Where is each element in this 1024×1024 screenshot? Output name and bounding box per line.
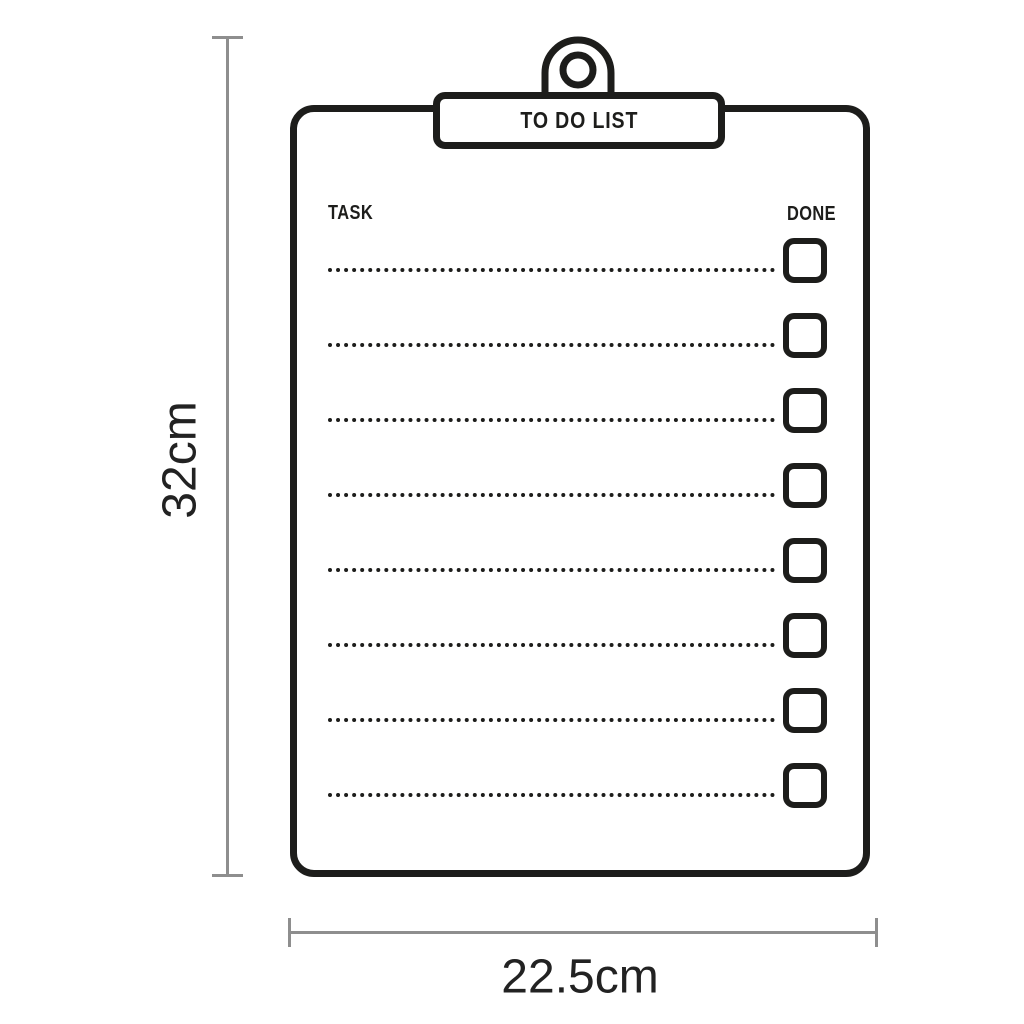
- product-dimension-diagram: 32cm 22.5cm TO DO LIST TASK DONE: [0, 0, 1024, 1024]
- done-checkbox-icon: [783, 688, 827, 733]
- task-dotted-line: [328, 493, 775, 497]
- width-dimension-line: [288, 931, 878, 934]
- height-dimension-line: [226, 36, 229, 877]
- done-checkbox-icon: [783, 313, 827, 358]
- task-dotted-line: [328, 418, 775, 422]
- task-dotted-line: [328, 568, 775, 572]
- dimension-cap: [212, 874, 243, 877]
- task-row: [328, 613, 827, 688]
- done-checkbox-icon: [783, 388, 827, 433]
- done-checkbox-icon: [783, 238, 827, 283]
- done-checkbox-icon: [783, 613, 827, 658]
- task-row: [328, 388, 827, 463]
- height-dimension-label: 32cm: [153, 401, 208, 518]
- task-row: [328, 688, 827, 763]
- task-row: [328, 538, 827, 613]
- task-rows: [328, 238, 827, 838]
- task-dotted-line: [328, 643, 775, 647]
- done-checkbox-icon: [783, 763, 827, 808]
- dimension-cap: [212, 36, 243, 39]
- done-checkbox-icon: [783, 463, 827, 508]
- task-dotted-line: [328, 718, 775, 722]
- clipboard-title: TO DO LIST: [520, 107, 638, 134]
- dimension-cap: [875, 918, 878, 947]
- task-column-header: TASK: [328, 202, 373, 225]
- clip-hole-icon: [563, 55, 593, 85]
- clip-tab-arch: [545, 40, 611, 99]
- task-row: [328, 463, 827, 538]
- task-dotted-line: [328, 268, 775, 272]
- width-dimension-label: 22.5cm: [501, 950, 658, 1005]
- task-row: [328, 238, 827, 313]
- done-checkbox-icon: [783, 538, 827, 583]
- task-dotted-line: [328, 793, 775, 797]
- done-column-header: DONE: [787, 203, 823, 226]
- dimension-cap: [288, 918, 291, 947]
- task-dotted-line: [328, 343, 775, 347]
- task-row: [328, 763, 827, 838]
- task-row: [328, 313, 827, 388]
- clip-bar: TO DO LIST: [433, 92, 725, 149]
